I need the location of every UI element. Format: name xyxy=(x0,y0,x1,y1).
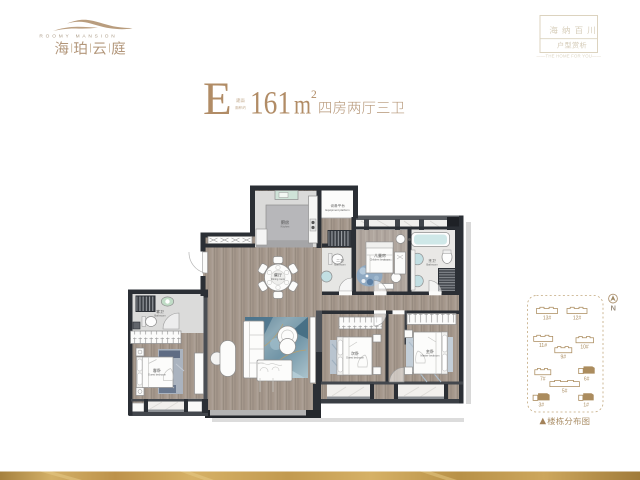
svg-text:5#: 5# xyxy=(562,389,568,395)
svg-text:1#: 1# xyxy=(583,403,589,409)
svg-text:E: E xyxy=(203,73,232,125)
svg-text:161: 161 xyxy=(250,86,291,122)
svg-text:Guest bedroom: Guest bedroom xyxy=(148,372,166,376)
svg-text:Equipment platform: Equipment platform xyxy=(325,208,350,212)
svg-text:12#: 12# xyxy=(573,316,582,322)
svg-text:Bathroom: Bathroom xyxy=(154,313,165,317)
svg-text:Kitchen: Kitchen xyxy=(281,224,290,228)
svg-text:6#: 6# xyxy=(584,377,590,383)
svg-text:2: 2 xyxy=(311,89,317,101)
svg-text:Dining room: Dining room xyxy=(271,277,285,281)
svg-text:N: N xyxy=(610,304,615,313)
svg-text:ROOMY MANSION: ROOMY MANSION xyxy=(39,34,117,40)
svg-text:Bathroom: Bathroom xyxy=(426,262,437,266)
svg-text:10#: 10# xyxy=(580,345,589,351)
svg-text:3#: 3# xyxy=(539,403,545,409)
svg-text:Guest bedroom: Guest bedroom xyxy=(346,355,364,359)
svg-text:9#: 9# xyxy=(561,355,567,361)
svg-text:13#: 13# xyxy=(543,316,552,322)
svg-text:Master bedroom: Master bedroom xyxy=(421,353,440,357)
svg-text:m: m xyxy=(294,90,311,120)
svg-text:11#: 11# xyxy=(539,343,547,349)
svg-text:——THE HOME FOR YOU——: ——THE HOME FOR YOU—— xyxy=(537,54,602,59)
svg-text:7#: 7# xyxy=(540,377,546,383)
svg-text:Children bedroom: Children bedroom xyxy=(370,257,391,261)
svg-text:Bathroom: Bathroom xyxy=(334,262,345,266)
